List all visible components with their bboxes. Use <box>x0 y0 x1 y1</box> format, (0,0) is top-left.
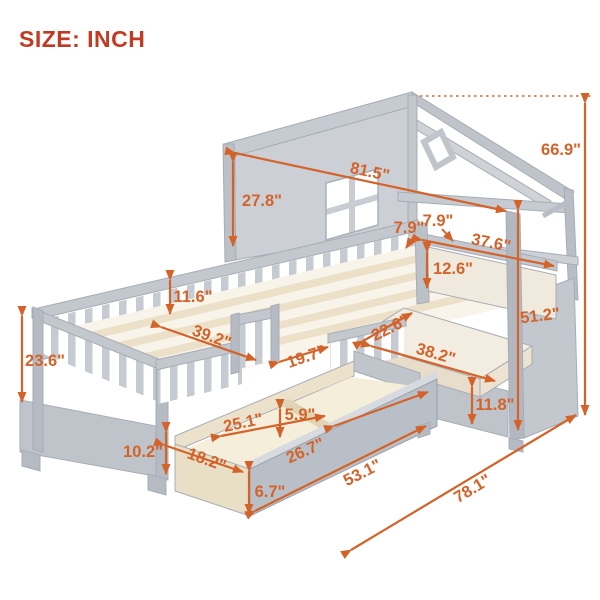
dim-wall-height: 27.8" <box>242 192 282 210</box>
apex-post <box>408 95 417 234</box>
dim-top-rail-b: 7.9" <box>423 212 454 230</box>
dim-top-rail-a: 7.9" <box>394 219 425 237</box>
dim-headboard-height: 23.6" <box>25 352 65 370</box>
dim-total-height: 66.9" <box>541 141 581 159</box>
guard-post <box>231 313 239 374</box>
roof-window-cutout <box>424 132 453 167</box>
dim-bed-base-height: 10.2" <box>123 443 163 461</box>
corner-post-back-left <box>33 307 43 453</box>
product-dimension-diagram: SIZE: INCH <box>0 0 600 600</box>
dim-guardrail-height: 11.6" <box>173 288 212 306</box>
size-unit-title: SIZE: INCH <box>19 26 145 53</box>
house-bed-diagram: 81.5" 27.8" 66.9" 7.9" 7.9" 37.6" 12.6" … <box>0 0 600 600</box>
dim-backrest-height: 12.6" <box>433 260 473 278</box>
dim-bench-base-height: 11.8" <box>475 396 514 414</box>
dim-drawer-divider-height: 5.9" <box>285 406 316 424</box>
eave-rail <box>398 192 570 213</box>
guard-post <box>271 304 279 362</box>
